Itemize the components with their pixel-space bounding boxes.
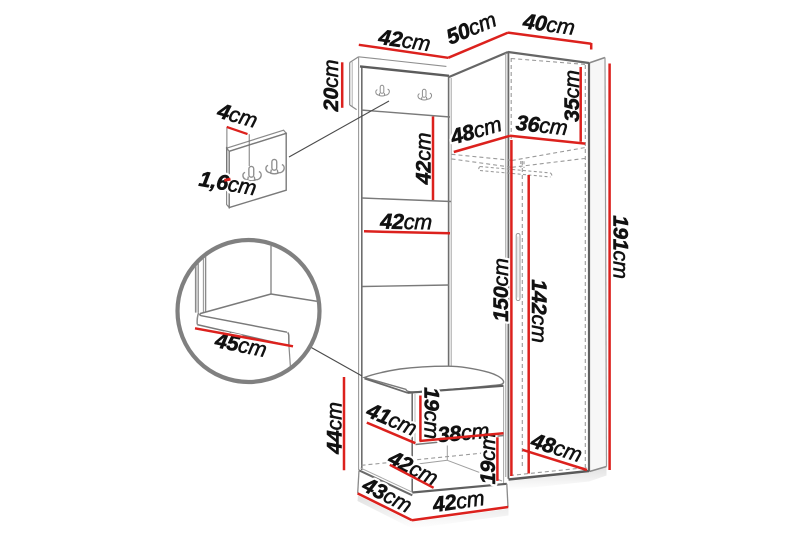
svg-text:20cm: 20cm [319, 60, 343, 113]
svg-text:142cm: 142cm [527, 279, 551, 343]
svg-text:191cm: 191cm [609, 215, 633, 279]
svg-text:150cm: 150cm [489, 258, 513, 322]
